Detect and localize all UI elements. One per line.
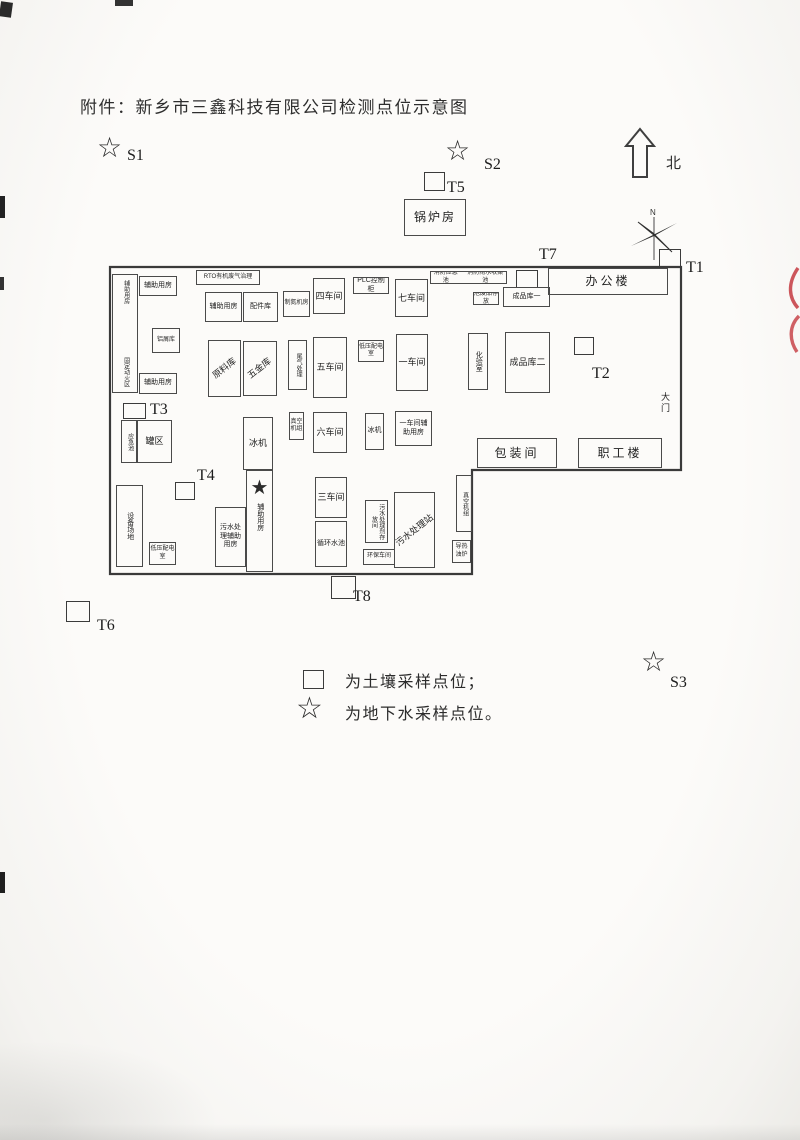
soil-point-t7-label: T7: [539, 246, 557, 264]
building-gate: 大门: [659, 392, 672, 414]
building-oil-furnace: 导热油炉: [452, 540, 471, 563]
building-staff-building: 职工楼: [578, 438, 662, 468]
building-plc-cabinet: PLC控制柜: [353, 277, 389, 294]
soil-point-t5-label: T5: [447, 179, 465, 197]
red-stamp-artifact: [784, 264, 800, 356]
building-fire-rain-pool-label: 消防雨水收集池: [465, 271, 506, 284]
building-raw-material-store: 原料库: [208, 340, 241, 397]
building-hardware-store: 五金库: [243, 341, 277, 396]
building-hazwaste-store: 危废品存放: [473, 292, 499, 305]
groundwater-point-s3-label: S3: [670, 674, 687, 692]
building-workshop7: 七车间: [395, 279, 428, 317]
building-aux-star-room: ★ 辅助用房: [246, 470, 273, 572]
building-chiller-1: 冰机: [243, 417, 273, 470]
building-fixed-fire-zone-label: 固定动火区: [121, 357, 128, 387]
north-arrow-icon: [622, 126, 658, 180]
svg-text:N: N: [650, 208, 656, 217]
soil-point-t1-icon: [659, 249, 681, 268]
soil-point-t6-icon: [66, 601, 90, 622]
north-label: 北: [666, 152, 681, 173]
building-aux-top: 辅助用房: [139, 276, 177, 296]
soil-point-t8-label: T8: [353, 588, 371, 606]
building-fire-pools: 消防应急池 消防雨水收集池: [430, 271, 507, 284]
groundwater-point-s2-label: S2: [484, 156, 501, 174]
building-finished-goods-2: 成品库二: [505, 332, 550, 393]
scan-artifact: [115, 0, 133, 6]
building-sewage-station-label: 污水处理站: [394, 512, 435, 548]
soil-point-t1-label: T1: [686, 259, 704, 277]
scan-smudge: [0, 1040, 220, 1140]
scan-artifact: [0, 872, 5, 893]
building-equipment-yard: 设备场地: [116, 485, 143, 567]
scan-smudge: [0, 1124, 800, 1140]
building-aux-star-room-label: 辅助用房: [255, 503, 263, 531]
soil-point-t2-icon: [574, 337, 594, 355]
groundwater-point-s1-label: S1: [127, 147, 144, 165]
building-aux-mid: 辅助用房: [205, 292, 242, 322]
building-office: 办公楼: [548, 268, 668, 295]
scan-artifact: [0, 1, 13, 18]
building-emergency-pool: 应急池: [121, 420, 137, 463]
building-lab: 化验室: [468, 333, 488, 390]
building-aux-top2: 辅助用房: [139, 373, 177, 394]
soil-point-t7-icon: [516, 270, 538, 288]
building-aux-left: 辅助用房 固定动火区: [112, 274, 138, 393]
building-sewage-station: 污水处理站: [394, 492, 435, 568]
scanned-page: 附件：新乡市三鑫科技有限公司检测点位示意图 北 N ☆ S1 ☆ S2 T5 锅…: [0, 0, 800, 1140]
building-tail-gas-treatment: 尾气处理: [288, 340, 307, 390]
building-workshop5: 五车间: [313, 337, 347, 398]
building-vacuum-unit-2: 真空机组: [456, 475, 472, 532]
building-fire-emergency-pool-label: 消防应急池: [431, 271, 461, 284]
soil-point-t5-icon: [424, 172, 445, 191]
soil-point-t6-label: T6: [97, 617, 115, 635]
groundwater-point-s3-icon: ☆: [641, 648, 666, 676]
building-finished-goods-1: 成品库一: [503, 287, 550, 307]
building-sewage-aux-room: 污水处理辅助用房: [215, 507, 246, 567]
building-sewage-agent-store: 污水处理剂存放间: [365, 500, 388, 543]
building-hardware-store-label: 五金库: [246, 356, 274, 381]
scan-artifact: [0, 196, 5, 218]
building-packing-room: 包装间: [477, 438, 557, 468]
building-circulating-pool: 循环水池: [315, 521, 347, 567]
building-boiler: 锅炉房: [404, 199, 466, 236]
building-workshop1: 一车间: [396, 334, 428, 391]
building-workshop3: 三车间: [315, 477, 347, 518]
location-star-icon: ★: [251, 477, 269, 497]
legend-groundwater-text: 为地下水采样点位。: [345, 700, 503, 724]
building-aux-left-label: 辅助用房: [121, 280, 128, 304]
building-lv-power-room-2: 低压配电室: [149, 542, 176, 565]
building-vacuum-unit-1: 真空机组: [289, 412, 304, 440]
groundwater-point-s2-icon: ☆: [445, 137, 470, 165]
soil-point-t4-label: T4: [197, 467, 215, 485]
building-nitrogen-room: 制氮机房: [283, 291, 310, 317]
soil-point-t3-icon: [123, 403, 146, 419]
legend-soil-text: 为土壤采样点位；: [345, 668, 485, 692]
soil-point-t4-icon: [175, 482, 195, 500]
soil-point-t2-label: T2: [592, 365, 610, 383]
building-tank-area: 罐区: [137, 420, 172, 463]
building-raw-material-store-label: 原料库: [211, 356, 239, 381]
legend-soil-icon: [303, 670, 324, 689]
building-env-workshop: 环保车间: [363, 549, 395, 565]
soil-point-t3-label: T3: [150, 401, 168, 419]
building-chiller-2: 冰机: [365, 413, 384, 450]
legend-groundwater-icon: ☆: [296, 694, 323, 724]
building-lv-power-room-1: 低压配电室: [358, 340, 384, 362]
building-rto: RTO有机废气治理: [196, 270, 260, 285]
building-scrap-store: 铝屑库: [152, 328, 180, 353]
building-workshop1-aux: 一车间辅助用房: [395, 411, 432, 446]
building-parts-store: 配件库: [243, 292, 278, 322]
page-title: 附件：新乡市三鑫科技有限公司检测点位示意图: [80, 93, 469, 118]
scan-artifact: [0, 277, 4, 290]
building-workshop4: 四车间: [313, 278, 345, 314]
groundwater-point-s1-icon: ☆: [97, 134, 122, 162]
building-workshop6: 六车间: [313, 412, 347, 453]
